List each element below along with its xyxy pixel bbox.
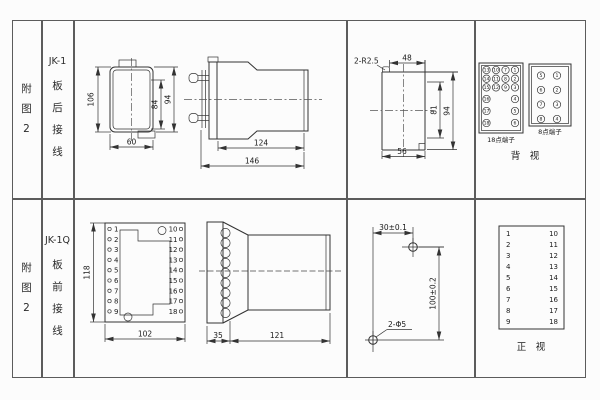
terminal-number: 8 (540, 117, 543, 123)
jk1-back-view-terminals: 13 10 7 1 14 11 8 2 15 12 9 3 16 4 17 5 … (479, 63, 571, 162)
terminal-number: 8 (504, 76, 507, 82)
terminal-number: 8 (114, 298, 118, 306)
terminal-number: 9 (114, 308, 118, 316)
terminal-number: 17 (549, 307, 558, 315)
jk1q-front-terminal-table: 1 2 3 4 5 6 7 8 9 10 11 12 13 14 15 16 1… (499, 226, 564, 353)
terminal-number: 11 (169, 236, 178, 244)
terminal-number: 7 (506, 296, 510, 304)
jk1q-side-view: 35 121 (199, 222, 343, 344)
terminal-number: 1 (114, 226, 118, 234)
terminal-number: 15 (169, 277, 178, 285)
terminal-number: 3 (114, 246, 118, 254)
terminal-number: 4 (114, 256, 119, 264)
dim-label: 146 (245, 157, 260, 166)
terminal-number: 14 (549, 274, 558, 282)
terminal-number: 13 (549, 263, 558, 271)
terminal-number: 9 (506, 318, 510, 326)
clamp-tab (119, 60, 136, 67)
terminal-number: 12 (493, 85, 499, 91)
terminal-number: 5 (114, 267, 118, 275)
jk1-rear-view: 106 84 94 60 (87, 58, 179, 150)
dim-label: 30±0.1 (379, 223, 407, 232)
dim-label: 106 (87, 92, 96, 107)
terminal-number: 4 (506, 263, 511, 271)
terminal-number: 2 (506, 241, 510, 249)
terminal-number: 18 (484, 121, 490, 127)
dim-label: 100±0.2 (429, 277, 438, 310)
terminal-number: 6 (540, 88, 543, 94)
technical-drawings: 106 84 94 60 124 146 (0, 0, 600, 400)
terminal-number: 11 (493, 76, 499, 82)
terminal-number: 3 (556, 102, 559, 108)
terminal-number: 6 (514, 121, 517, 127)
terminal-number: 5 (506, 274, 510, 282)
terminal-number: 2 (514, 76, 517, 82)
bottom-notch (419, 144, 425, 151)
dim-label: 48 (402, 54, 412, 63)
terminal-number: 16 (549, 296, 558, 304)
terminal-number: 1 (556, 73, 559, 79)
jk1-panel-cutout: 48 81 94 56 2-R2.5 (354, 54, 458, 160)
terminal-number: 4 (556, 117, 559, 123)
dim-label: 121 (270, 331, 285, 340)
terminal-number: 2 (556, 88, 559, 94)
terminal-number: 14 (484, 76, 490, 82)
jk1-side-view: 124 146 (184, 57, 322, 169)
terminal-number: 10 (549, 230, 558, 238)
mounting-hole (158, 227, 166, 235)
dim-label: 124 (254, 139, 269, 148)
terminal-number: 3 (514, 85, 517, 91)
dim-label: 118 (83, 265, 92, 280)
radius-note: 2-R2.5 (354, 57, 379, 66)
jk1q-front-view: 1 2 3 4 5 6 7 8 9 10 11 12 13 14 15 16 1… (83, 223, 186, 342)
terminal-number: 18 (169, 308, 178, 316)
terminal-number: 11 (549, 241, 558, 249)
dim-label: 94 (164, 95, 173, 105)
terminal-block-label: 18点端子 (487, 135, 515, 144)
terminal-number: 3 (506, 252, 510, 260)
terminal-number: 17 (484, 109, 490, 115)
terminal-number: 6 (506, 285, 511, 293)
terminal-number: 7 (540, 102, 543, 108)
terminal-number: 16 (169, 287, 178, 295)
terminal-number: 13 (484, 68, 490, 74)
terminal-number: 2 (114, 236, 118, 244)
terminal-block-label: 8点端子 (538, 127, 562, 136)
view-caption: 背 视 (511, 150, 540, 162)
terminal-number: 18 (549, 318, 558, 326)
view-caption: 正 视 (517, 341, 546, 353)
jk1q-drill-plan: 30±0.1 100±0.2 2-Φ5 (365, 223, 444, 352)
terminal-number: 5 (540, 73, 543, 79)
dim-label: 56 (397, 147, 407, 156)
terminal-number: 14 (169, 267, 178, 275)
terminal-number: 16 (484, 97, 490, 103)
terminal-number: 7 (114, 287, 118, 295)
terminal-number: 15 (484, 85, 490, 91)
terminal-number: 9 (504, 85, 507, 91)
terminal-number: 1 (514, 68, 517, 74)
terminal-number: 17 (169, 298, 178, 306)
terminal-number: 12 (549, 252, 558, 260)
dim-label: 81 (430, 105, 439, 115)
terminal-number: 5 (514, 109, 517, 115)
terminal-number: 13 (169, 256, 178, 264)
terminal-number: 4 (514, 97, 517, 103)
dim-label: 60 (127, 138, 137, 147)
terminal-number: 15 (549, 285, 558, 293)
terminal-number: 8 (506, 307, 510, 315)
terminal-number: 12 (169, 246, 178, 254)
dim-label: 35 (213, 331, 223, 340)
mounting-hole (124, 313, 132, 321)
terminal-stud (189, 74, 198, 83)
hole-note: 2-Φ5 (388, 320, 406, 329)
dim-label: 94 (443, 106, 452, 116)
terminal-number: 6 (114, 277, 119, 285)
terminal-number: 7 (504, 68, 507, 74)
terminal-number: 10 (493, 68, 499, 74)
terminal-stud (189, 114, 198, 123)
terminal-number: 10 (169, 226, 178, 234)
dim-label: 84 (151, 100, 160, 110)
terminal-number: 1 (506, 230, 510, 238)
dim-label: 102 (138, 330, 153, 339)
